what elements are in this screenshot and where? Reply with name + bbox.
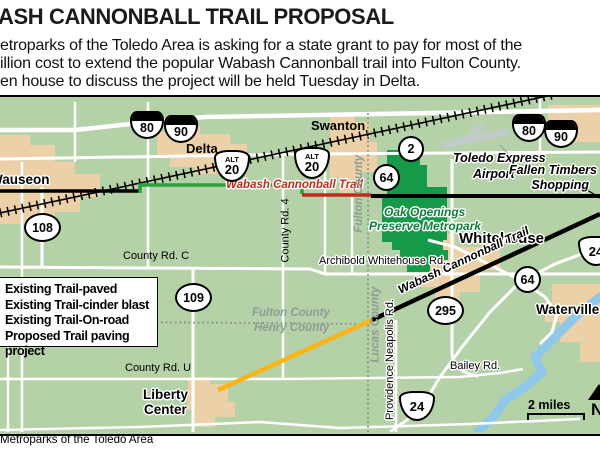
- sr109-shield: 109: [175, 283, 212, 312]
- road-label-archibold: Archibold Whitehouse Rd.: [319, 256, 446, 267]
- trail-label-red: Wabash Cannonball Trail: [226, 180, 363, 192]
- legend-box: Existing Trail-paved Existing Trail-cind…: [0, 277, 158, 347]
- road-county-c-archibold: [0, 267, 600, 274]
- park-label-2: Preserve Metropark: [369, 220, 481, 232]
- sr64-shield-south: 64: [514, 266, 541, 293]
- legend-item-cinder: Existing Trail-cinder blast: [5, 298, 157, 314]
- page-title: ASH CANNONBALL TRAIL PROPOSAL: [0, 4, 394, 30]
- park-label: Oak Openings: [384, 206, 465, 218]
- county-label-fulton-h: Fulton County: [252, 308, 330, 320]
- town-label-delta: Delta: [186, 142, 218, 155]
- north-label: N: [591, 401, 600, 418]
- credit-line: Metroparks of the Toledo Area: [0, 434, 153, 446]
- scale-label: 2 miles: [528, 399, 570, 412]
- road-turnpike: [0, 110, 600, 130]
- sr64-shield-north: 64: [373, 164, 400, 191]
- legend-item-paved: Existing Trail-paved: [5, 282, 157, 298]
- fallen-timbers-label-2: Shopping: [531, 179, 589, 192]
- legend-item-proposed: Proposed Trail paving project: [5, 329, 157, 360]
- intro-line-2: illion cost to extend the popular Wabash…: [0, 55, 521, 73]
- scale-bar: [527, 413, 585, 420]
- town-label-wauseon: Wauseon: [0, 173, 50, 187]
- trail-map: Wauseon Delta Swanton Whitehouse Watervi…: [0, 95, 600, 436]
- north-arrow-icon: [588, 384, 600, 400]
- road-label-county-u: County Rd. U: [125, 363, 191, 374]
- sr2-shield: 2: [398, 136, 424, 162]
- road-label-county-c: County Rd. C: [123, 251, 189, 262]
- road-label-bailey: Bailey Rd.: [450, 361, 500, 372]
- intro-line-1: etroparks of the Toledo Area is asking f…: [0, 37, 522, 55]
- town-label-waterville: Waterville: [536, 303, 599, 317]
- town-label-liberty-center-2: Center: [144, 403, 187, 417]
- town-label-liberty-center: Liberty: [143, 388, 188, 402]
- county-label-henry-h: Henry County: [254, 323, 329, 335]
- intro-line-3: en house to discuss the project will be …: [0, 73, 420, 91]
- sr295-shield: 295: [427, 296, 464, 325]
- legend-item-onroad: Existing Trail-On-road: [5, 313, 157, 329]
- fallen-timbers-label: Fallen Timbers: [509, 164, 597, 177]
- town-label-swanton: Swanton: [311, 119, 365, 132]
- sr108-shield: 108: [24, 213, 61, 242]
